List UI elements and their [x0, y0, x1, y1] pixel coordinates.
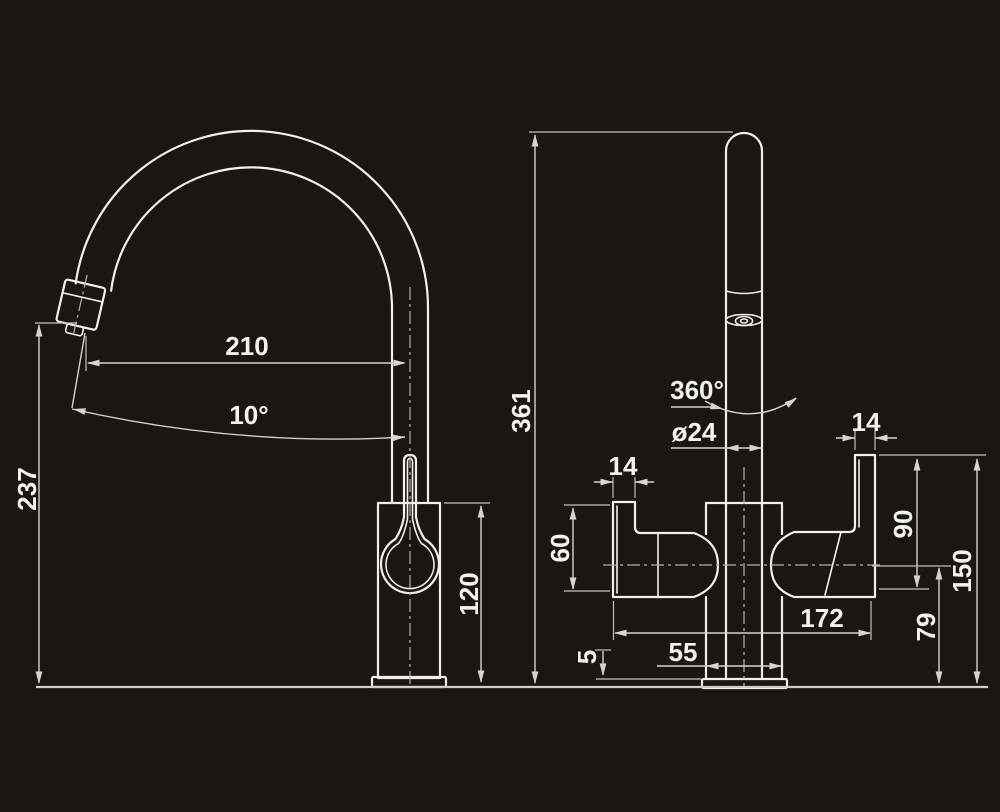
right-handle-seam: [825, 532, 841, 595]
dim-label-60: 60: [545, 534, 575, 563]
dim-label-dia24: ø24: [672, 417, 717, 447]
dim-label-120: 120: [454, 572, 484, 615]
drawing-canvas: 237 210 10° 120: [0, 0, 1000, 812]
dim-label-5: 5: [572, 650, 602, 664]
dimension-dia24: ø24: [671, 417, 762, 451]
spout-tip: [53, 270, 108, 343]
dimension-210: 210: [86, 331, 406, 371]
faucet-technical-drawing: 237 210 10° 120: [0, 0, 1000, 812]
dimension-150: 150: [947, 458, 980, 684]
dim-label-361: 361: [506, 389, 536, 432]
dimension-79: 79: [872, 566, 951, 684]
dimension-14-left: 14: [594, 451, 654, 498]
dim-label-14-left: 14: [609, 451, 638, 481]
left-handle: [613, 502, 718, 597]
dim-label-237: 237: [12, 467, 42, 510]
dim-label-150: 150: [947, 549, 977, 592]
dimension-14-right: 14: [836, 407, 897, 450]
dim-label-90: 90: [888, 510, 918, 539]
side-body: [378, 503, 440, 678]
dimension-360deg: 360°: [670, 375, 799, 414]
dimension-55: 55: [657, 637, 782, 669]
dimension-172: 172: [614, 601, 872, 640]
dimension-60: 60: [545, 505, 610, 591]
dimension-237: 237: [12, 323, 77, 684]
aerator-front: [736, 317, 753, 326]
dim-label-79: 79: [911, 613, 941, 642]
aerator-front-center: [741, 319, 748, 323]
loop-handle-outer: [381, 455, 439, 593]
dim-label-360deg: 360°: [670, 375, 724, 405]
dim-label-172: 172: [800, 603, 843, 633]
side-view: 237 210 10° 120: [12, 131, 490, 687]
dim-label-10deg: 10°: [229, 400, 268, 430]
dim-label-210: 210: [225, 331, 268, 361]
dimension-361: 361: [506, 132, 733, 684]
pipe-joint-seam: [726, 291, 762, 294]
front-view: 361 360° ø24 14: [506, 132, 986, 688]
dim-label-14-right: 14: [852, 407, 881, 437]
spout-outer-arc: [76, 131, 428, 503]
right-handle: [771, 455, 875, 597]
dimension-120: 120: [444, 503, 490, 683]
dim-label-55: 55: [669, 637, 698, 667]
